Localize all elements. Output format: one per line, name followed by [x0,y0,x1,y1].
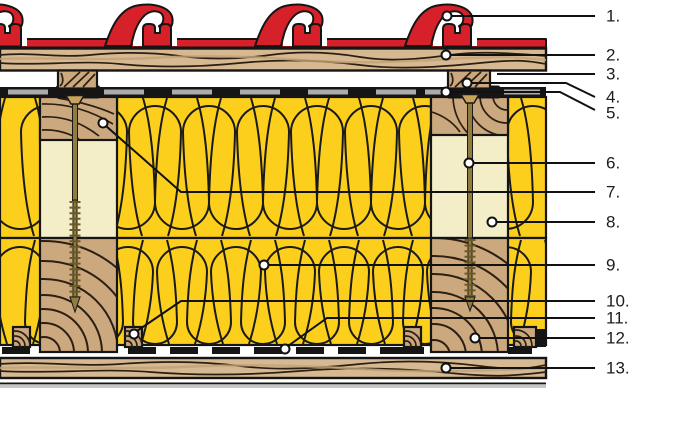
marker-dot-12 [471,334,480,343]
marker-dot-5 [442,88,451,97]
tile-batten-board [0,49,546,71]
marker-dot-2 [442,51,451,60]
label-3: 3. [606,65,620,84]
marker-dot-10 [130,330,139,339]
marker-dot-4 [463,79,472,88]
label-8: 8. [606,213,620,232]
marker-dot-1 [443,12,452,21]
marker-dot-6 [465,159,474,168]
label-12: 12. [606,329,630,348]
marker-dot-8 [488,218,497,227]
ceiling-finish-layers [0,383,546,389]
marker-dot-7 [99,119,108,128]
label-1: 1. [606,7,620,26]
counter-batten-left [58,71,97,89]
roof-construction-diagram: 1. 2. 3. 4. 5. 6. 7. 8. 9. 10. 11. 12. 1… [0,0,700,427]
marker-dot-11 [281,345,290,354]
label-9: 9. [606,256,620,275]
diagram-canvas: 1. 2. 3. 4. 5. 6. 7. 8. 9. 10. 11. 12. 1… [0,0,700,427]
label-7: 7. [606,183,620,202]
label-6: 6. [606,154,620,173]
label-11: 11. [606,309,628,328]
marker-dot-9 [260,261,269,270]
label-13: 13. [606,359,630,378]
label-2: 2. [606,46,620,65]
marker-dot-13 [442,364,451,373]
label-5: 5. [606,104,620,123]
